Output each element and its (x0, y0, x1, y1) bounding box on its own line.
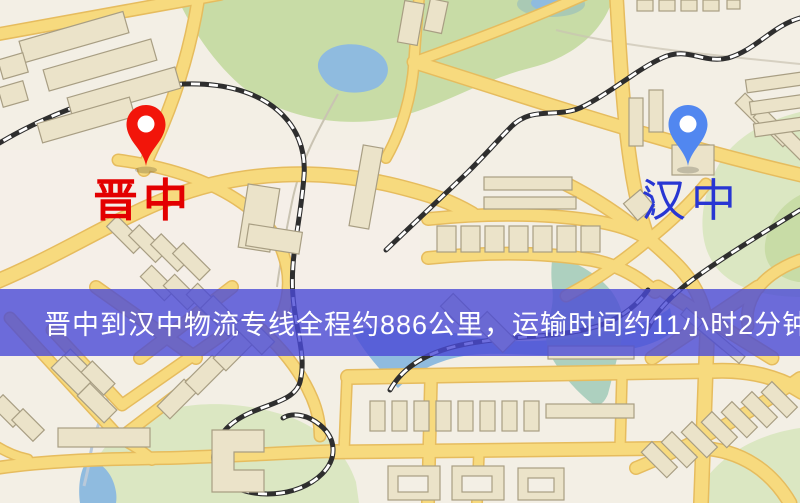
route-info-banner: 晋中到汉中物流专线全程约886公里，运输时间约11小时2分钟. (0, 289, 800, 356)
origin-label: 晋中 (93, 175, 193, 226)
origin-pin-shadow (135, 167, 157, 174)
map-image: 晋中 汉中 晋中到汉中物流专线全程约886公里，运输时间约11小时2分钟. (0, 0, 800, 503)
destination-pin-shadow (677, 167, 699, 174)
destination-label: 汉中 (641, 175, 741, 226)
route-info-text: 晋中到汉中物流专线全程约886公里，运输时间约11小时2分钟. (0, 303, 800, 342)
map-canvas: 晋中 汉中 (0, 0, 800, 503)
